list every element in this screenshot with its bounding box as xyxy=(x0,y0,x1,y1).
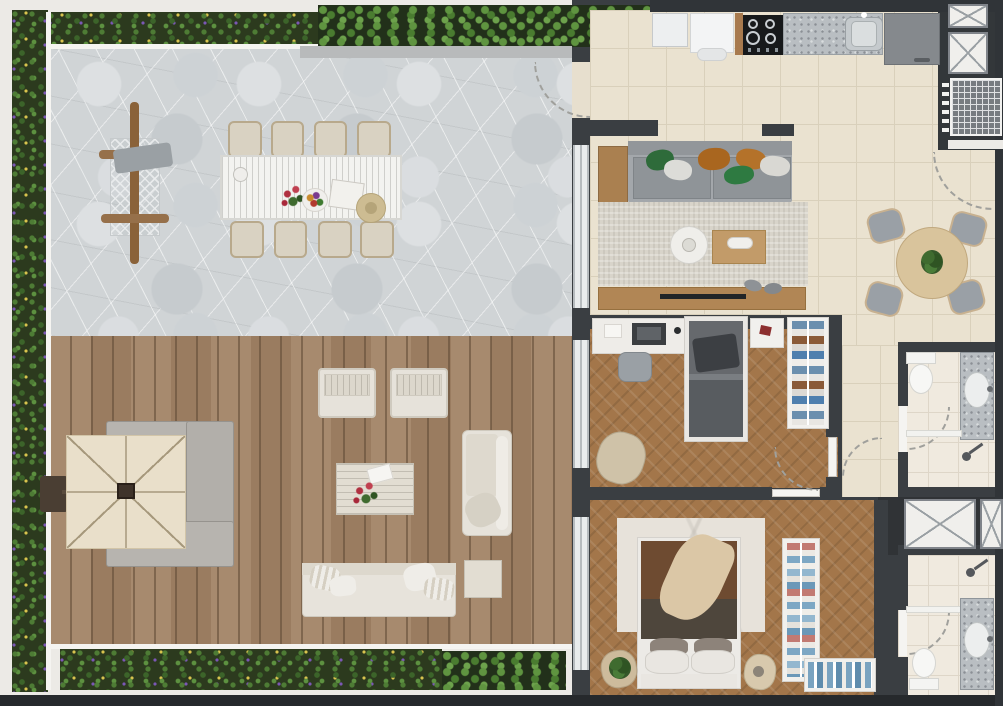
service-shelf xyxy=(948,140,1003,149)
floor-plan xyxy=(0,0,1003,706)
hedge-left xyxy=(12,10,48,692)
wall-bedroom1-bottom-b xyxy=(820,487,842,500)
kitchen-fridge xyxy=(884,13,940,65)
closet-cabinet-2 xyxy=(980,499,1003,549)
wall-bathroom1-top xyxy=(898,342,995,352)
service-ticks xyxy=(942,80,949,132)
desk-mouse xyxy=(674,327,681,334)
desk-chair xyxy=(618,352,652,382)
tv xyxy=(660,294,746,299)
chaise-cushion xyxy=(466,434,498,496)
deck-sofa-pillow-2 xyxy=(329,575,357,598)
wall-bedroom2-right xyxy=(874,500,888,695)
coffee-table-tray xyxy=(727,237,753,249)
cooktop-knobs xyxy=(748,48,778,52)
deck-armchair-2-cushion xyxy=(396,374,442,396)
patio-chair-8 xyxy=(360,221,394,258)
burner-3 xyxy=(746,31,760,45)
patio-chair-5 xyxy=(230,221,264,258)
wardrobe2-rail xyxy=(800,543,802,677)
fridge-handles xyxy=(914,58,930,62)
wall-living-top-a xyxy=(590,120,658,136)
hammock-post xyxy=(130,102,139,264)
umbrella-hub xyxy=(117,483,135,499)
bed1-blanket-fold xyxy=(689,374,743,380)
bathroom1-door-leaf xyxy=(899,406,907,452)
kitchen-cabinet-drawer xyxy=(697,48,727,61)
patio-chair-2 xyxy=(271,121,304,158)
bed2-sheet xyxy=(641,674,737,688)
burner-4 xyxy=(765,33,776,44)
desk-laptop-screen xyxy=(637,327,661,340)
hedge-top xyxy=(48,12,336,46)
bed2-pillow-white-2 xyxy=(691,650,735,674)
side-table-decor xyxy=(682,238,696,252)
sink-bowl xyxy=(851,21,877,47)
deck-side-table xyxy=(464,560,502,598)
toilet1-tank xyxy=(906,352,936,364)
spice-rack xyxy=(735,13,743,55)
wall-bathroom1-left-b xyxy=(898,452,908,487)
service-cabinet xyxy=(948,32,988,74)
patio-table-fruit-bowl xyxy=(302,188,328,212)
sink1-faucet xyxy=(987,386,993,392)
patio-chair-1 xyxy=(228,121,262,158)
bathroom2-door-leaf xyxy=(899,610,907,656)
wall-bathroom2-left-b xyxy=(898,657,908,695)
patio-table-cup xyxy=(233,167,248,182)
bed2-pillow-white-1 xyxy=(645,650,689,674)
shoe-rack-shoes xyxy=(808,662,872,688)
toilet2-tank xyxy=(909,678,939,690)
dining-centerpiece xyxy=(921,250,943,274)
patio-chair-6 xyxy=(274,221,307,258)
desk-printer xyxy=(604,324,622,338)
hedge-bottom xyxy=(60,649,442,690)
hammock-crossbar-bottom xyxy=(101,214,169,223)
concrete-bench-top xyxy=(300,46,572,58)
kitchen-cabinet-white xyxy=(690,13,734,53)
bed1-pillow xyxy=(692,333,740,373)
bedroom1-window xyxy=(573,340,589,468)
wardrobe1-rail xyxy=(807,321,809,425)
patio-table-hat-top xyxy=(365,202,377,214)
fern-planter-bottom xyxy=(442,651,566,690)
sink1 xyxy=(964,372,990,408)
wall-living-top-b xyxy=(762,124,794,136)
shower1-shelf xyxy=(906,430,962,437)
patio-chair-4 xyxy=(357,121,391,158)
patio-chair-7 xyxy=(318,221,352,258)
living-slider-door xyxy=(573,145,589,308)
nightstand2-decor xyxy=(753,666,764,677)
dishwasher xyxy=(652,13,688,47)
burner-2 xyxy=(765,19,775,29)
sink2-faucet xyxy=(987,636,993,642)
umbrella-base xyxy=(40,476,68,512)
burner-1 xyxy=(748,19,758,29)
closet-cabinet-1 xyxy=(904,499,976,549)
patio-chair-3 xyxy=(314,121,347,158)
toilet2-bowl xyxy=(912,648,936,678)
outer-wall-bottom xyxy=(0,695,1003,706)
toilet1-bowl xyxy=(909,364,933,394)
bed1-blanket xyxy=(689,378,743,437)
sink2 xyxy=(964,622,990,658)
wall-bedroom1-bottom-a xyxy=(585,487,772,500)
deck-armchair-1-cushion xyxy=(324,374,370,396)
drying-rack-grid xyxy=(950,78,1002,136)
bedroom2-window xyxy=(573,517,589,670)
nightstand2-plant xyxy=(609,657,631,679)
bedroom1-door-leaf xyxy=(828,437,837,477)
shower2-shelf xyxy=(906,606,962,613)
sink-faucet xyxy=(861,12,867,18)
deck-table-flowers xyxy=(350,478,382,510)
wall-bathroom2-left-a xyxy=(898,555,908,610)
wall-bathroom1-bottom xyxy=(898,487,995,497)
service-cabinet-top xyxy=(948,4,988,28)
